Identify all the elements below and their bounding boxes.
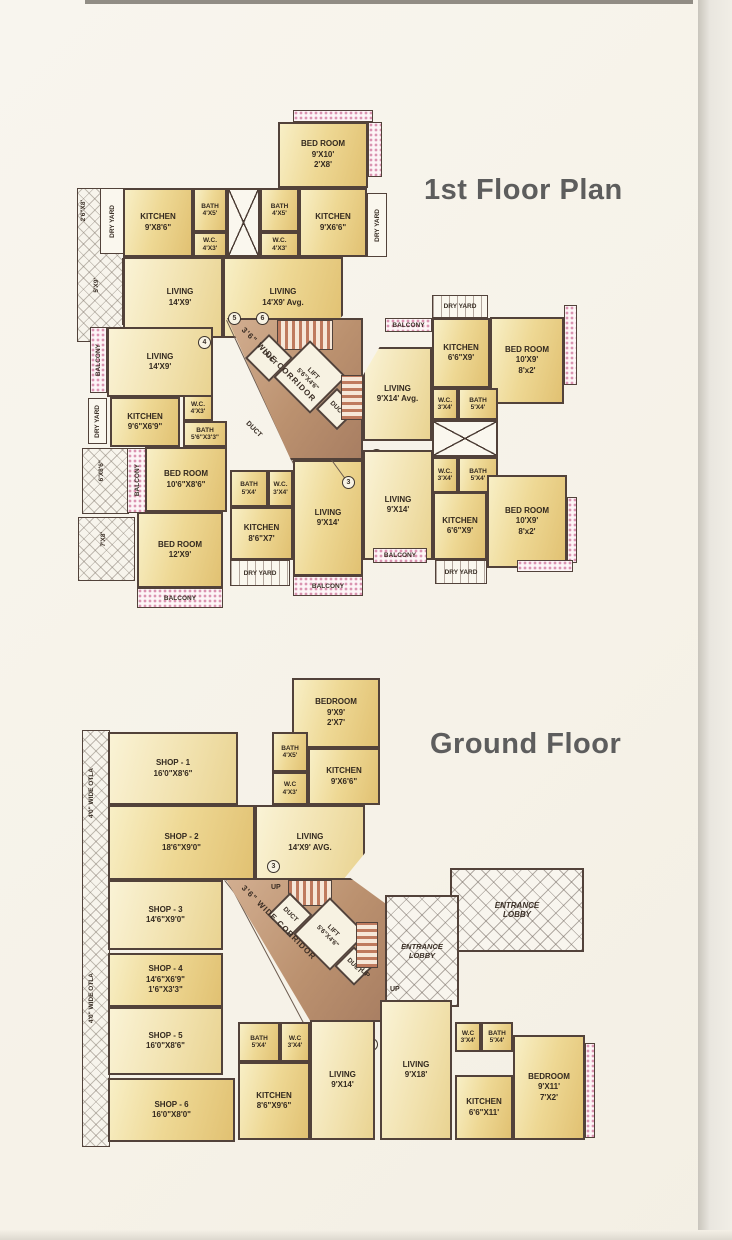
room-wc-top-left: W.C.4'X3' bbox=[193, 232, 227, 257]
room-kitchen-top-left: KITCHEN9'X8'6" bbox=[123, 188, 193, 257]
otla-strip bbox=[82, 730, 110, 1147]
room-wc-right-1: W.C.3'X4' bbox=[432, 388, 458, 420]
shaft-right bbox=[432, 420, 498, 457]
room-living-bottom-center: LIVING9'X14' bbox=[310, 1020, 375, 1140]
room-bath-bottom-right: BATH5'X4' bbox=[481, 1022, 513, 1052]
balcony-strip bbox=[293, 110, 373, 122]
room-bath-bottom-center: BATH5'X4' bbox=[238, 1022, 280, 1062]
room-bath-right-1: BATH5'X4' bbox=[458, 388, 498, 420]
room-shop-2: SHOP - 218'6"X9'0" bbox=[108, 805, 255, 880]
room-wc-bottom-center: W.C3'X4' bbox=[280, 1022, 310, 1062]
balcony-strip bbox=[567, 497, 577, 563]
room-bath-center: BATH5'X4' bbox=[230, 470, 268, 507]
dry-yard-strip: DRY YARD bbox=[230, 560, 290, 586]
room-shop-6: SHOP - 616'0"X8'0" bbox=[108, 1078, 235, 1142]
room-living-right-2: LIVING9'X14' bbox=[363, 450, 433, 560]
balcony-strip: BALCONY bbox=[90, 327, 107, 393]
room-living-bottom-right: LIVING9'X18' bbox=[380, 1000, 452, 1140]
room-kitchen-bottom-right: KITCHEN6'6"X11' bbox=[455, 1075, 513, 1140]
stairs-side bbox=[356, 922, 378, 968]
room-bedroom-mid-left: BED ROOM10'6"X8'6" bbox=[145, 447, 227, 512]
room-wc-mid-left: W.C.4'X3' bbox=[183, 395, 213, 421]
room-wc-top: W.C4'X3' bbox=[272, 772, 308, 805]
balcony-strip: BALCONY bbox=[293, 576, 363, 596]
dry-yard-strip: DRY YARD bbox=[88, 398, 107, 444]
room-bedroom-right-1: BED ROOM10'X9'8'x2' bbox=[490, 317, 564, 404]
room-kitchen-right-2: KITCHEN6'6"X9' bbox=[433, 492, 487, 560]
room-bath-top-left: BATH4'X5' bbox=[193, 188, 227, 232]
shaft-top bbox=[227, 188, 260, 257]
scanned-floor-plan-page: { "page": {"bg": "#f7f3ea"}, "colors": {… bbox=[0, 0, 732, 1240]
up-label: UP bbox=[390, 986, 400, 993]
room-bedroom-top: BED ROOM9'X10'2'X8' bbox=[278, 122, 368, 188]
hatch-area-bottom-left bbox=[78, 517, 135, 581]
room-living-top-left: LIVING14'X9' bbox=[123, 257, 223, 338]
room-wc-bottom-right: W.C3'X4' bbox=[455, 1022, 481, 1052]
scan-page-edge-right bbox=[698, 0, 732, 1240]
room-shop-5: SHOP - 516'0"X8'6" bbox=[108, 1007, 223, 1075]
balcony-strip: BALCONY bbox=[373, 548, 427, 563]
ground-plan: BEDROOM9'X9'2'X7' BATH4'X5' W.C4'X3' KIT… bbox=[78, 668, 660, 1150]
dim-label: 5'X9' bbox=[93, 278, 100, 293]
dry-yard-strip: DRY YARD bbox=[435, 560, 487, 584]
entrance-lobby-main: ENTRANCELOBBY bbox=[450, 868, 584, 952]
balcony-strip bbox=[517, 560, 573, 572]
unit-marker-3: 3 bbox=[267, 860, 280, 873]
otla-label: 4'0" WIDE OTLA bbox=[88, 973, 95, 1023]
room-shop-1: SHOP - 116'0"X8'6" bbox=[108, 732, 238, 805]
dry-yard-strip: DRY YARD bbox=[367, 193, 387, 257]
dry-yard-strip: DRY YARD bbox=[100, 188, 125, 254]
room-bedroom-bottom-right: BEDROOM9'X11'7'X2' bbox=[513, 1035, 585, 1140]
room-wc-center: W.C.3'X4' bbox=[268, 470, 293, 507]
room-bath-mid-left: BATH5'6"X3'3" bbox=[183, 421, 227, 447]
room-kitchen-mid-left: KITCHEN9'6"X6'9" bbox=[110, 397, 180, 447]
room-kitchen-bottom-center: KITCHEN8'6"X7' bbox=[230, 507, 293, 560]
stairs-side bbox=[341, 375, 363, 420]
room-kitchen-bottom-center: KITCHEN8'6"X9'6" bbox=[238, 1062, 310, 1140]
duct-label: DUCT bbox=[244, 420, 263, 439]
scan-page-edge-bottom bbox=[0, 1230, 732, 1240]
room-bedroom-right-2: BED ROOM10'X9'8'x2' bbox=[487, 475, 567, 568]
balcony-strip: BALCONY bbox=[385, 318, 432, 332]
room-kitchen-right-1: KITCHEN6'6"X9' bbox=[432, 318, 490, 388]
room-shop-4: SHOP - 414'6"X6'9"1'6"X3'3" bbox=[108, 953, 223, 1007]
room-living-mid-left: LIVING14'X9' bbox=[107, 327, 213, 397]
hatch-area-left bbox=[82, 448, 129, 514]
balcony-strip: BALCONY bbox=[137, 588, 223, 608]
balcony-strip bbox=[368, 122, 382, 177]
room-bath-top-center: BATH4'X5' bbox=[260, 188, 299, 232]
unit-marker-4: 4 bbox=[198, 336, 211, 349]
floor1-plan: BED ROOM9'X10'2'X8' 2'6"X8' DRY YARD 5'X… bbox=[60, 108, 660, 613]
scan-page-edge-top bbox=[85, 0, 693, 4]
balcony-strip bbox=[564, 305, 577, 385]
unit-marker-5: 5 bbox=[228, 312, 241, 325]
otla-label: 4'0" WIDE OTLA bbox=[88, 768, 95, 818]
room-bath-top: BATH4'X5' bbox=[272, 732, 308, 772]
dim-label: 6'X8'6" bbox=[98, 460, 105, 481]
room-kitchen-top: KITCHEN9'X6'6" bbox=[308, 748, 380, 805]
room-bedroom-bottom-left: BED ROOM12'X9' bbox=[137, 512, 223, 588]
dry-yard-strip: DRY YARD bbox=[432, 295, 488, 318]
room-living-right-1: LIVING9'X14' Avg. bbox=[363, 347, 432, 441]
room-wc-top-center: W.C.4'X3' bbox=[260, 232, 299, 257]
unit-marker-3: 3 bbox=[342, 476, 355, 489]
dim-label: 7'X8' bbox=[100, 532, 107, 547]
room-wc-right-2: W.C.3'X4' bbox=[432, 457, 458, 493]
room-kitchen-top-right: KITCHEN9'X6'6" bbox=[299, 188, 367, 257]
up-label: UP bbox=[271, 884, 281, 891]
balcony-strip: BALCONY bbox=[127, 448, 147, 513]
room-shop-3: SHOP - 314'6"X9'0" bbox=[108, 880, 223, 950]
dim-label: 2'6"X8' bbox=[80, 200, 87, 221]
balcony-strip bbox=[585, 1043, 595, 1138]
unit-marker-6: 6 bbox=[256, 312, 269, 325]
